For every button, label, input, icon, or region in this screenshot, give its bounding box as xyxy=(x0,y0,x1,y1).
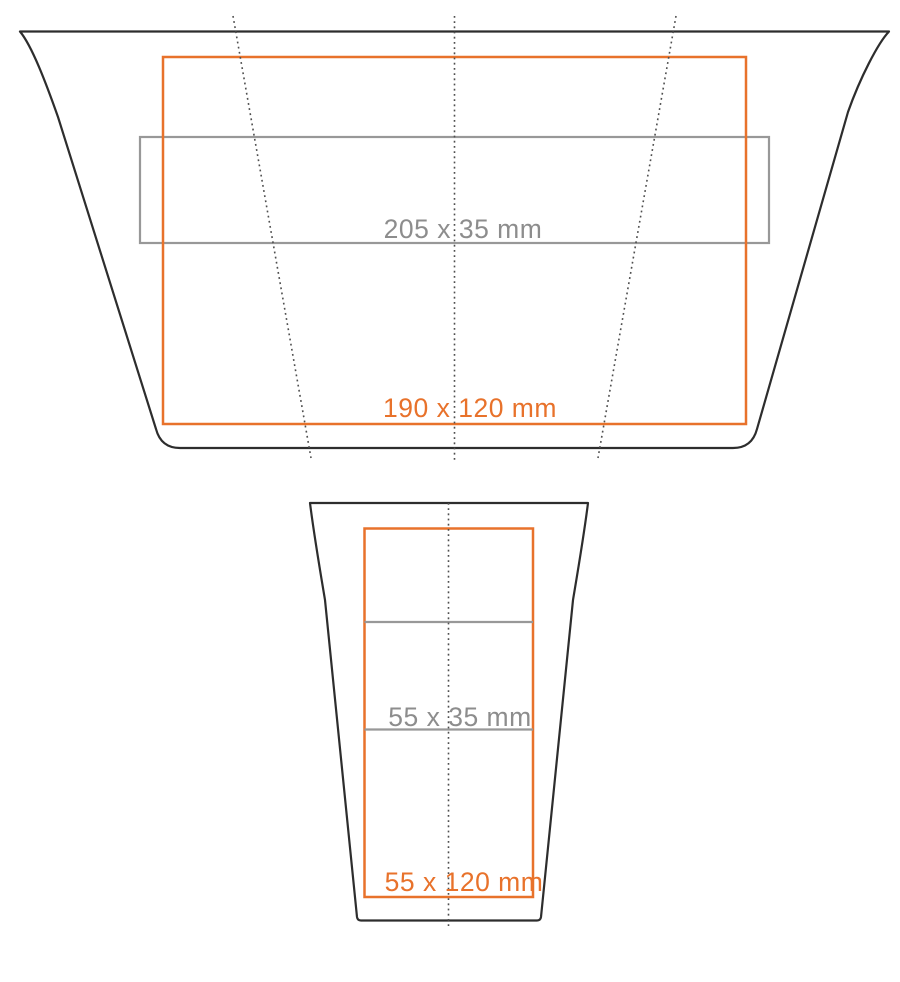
side-wrap-size-label: 55 x 120 mm xyxy=(385,867,544,897)
side-band-size-label: 55 x 35 mm xyxy=(388,702,531,732)
diagram-canvas: 205 x 35 mm 190 x 120 mm 55 x 35 mm 55 x… xyxy=(0,0,900,982)
cup-side-view: 55 x 35 mm 55 x 120 mm xyxy=(310,503,588,927)
cup-blank-top-view: 205 x 35 mm 190 x 120 mm xyxy=(20,16,889,460)
wrap-size-label: 190 x 120 mm xyxy=(383,393,557,423)
band-size-label: 205 x 35 mm xyxy=(384,214,543,244)
print-area-diagram: 205 x 35 mm 190 x 120 mm 55 x 35 mm 55 x… xyxy=(0,0,900,982)
